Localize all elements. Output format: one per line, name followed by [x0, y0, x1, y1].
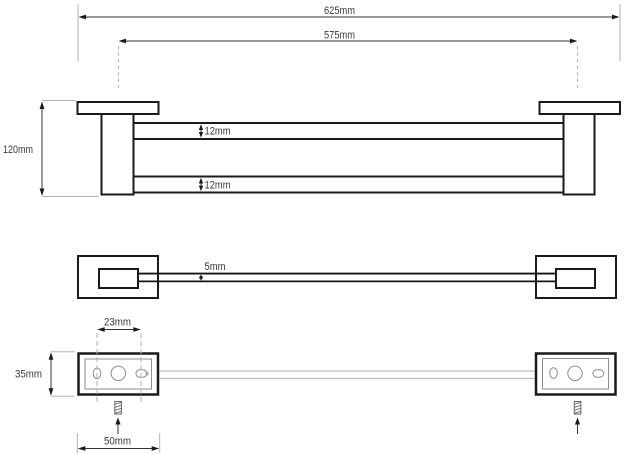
svg-text:5mm: 5mm — [205, 261, 226, 273]
svg-text:35mm: 35mm — [15, 369, 42, 381]
svg-text:23mm: 23mm — [104, 317, 131, 329]
svg-text:120mm: 120mm — [3, 144, 33, 156]
svg-text:575mm: 575mm — [324, 30, 355, 42]
svg-text:12mm: 12mm — [205, 126, 231, 138]
svg-text:50mm: 50mm — [104, 436, 131, 448]
svg-text:625mm: 625mm — [324, 5, 355, 17]
svg-text:12mm: 12mm — [205, 180, 231, 192]
